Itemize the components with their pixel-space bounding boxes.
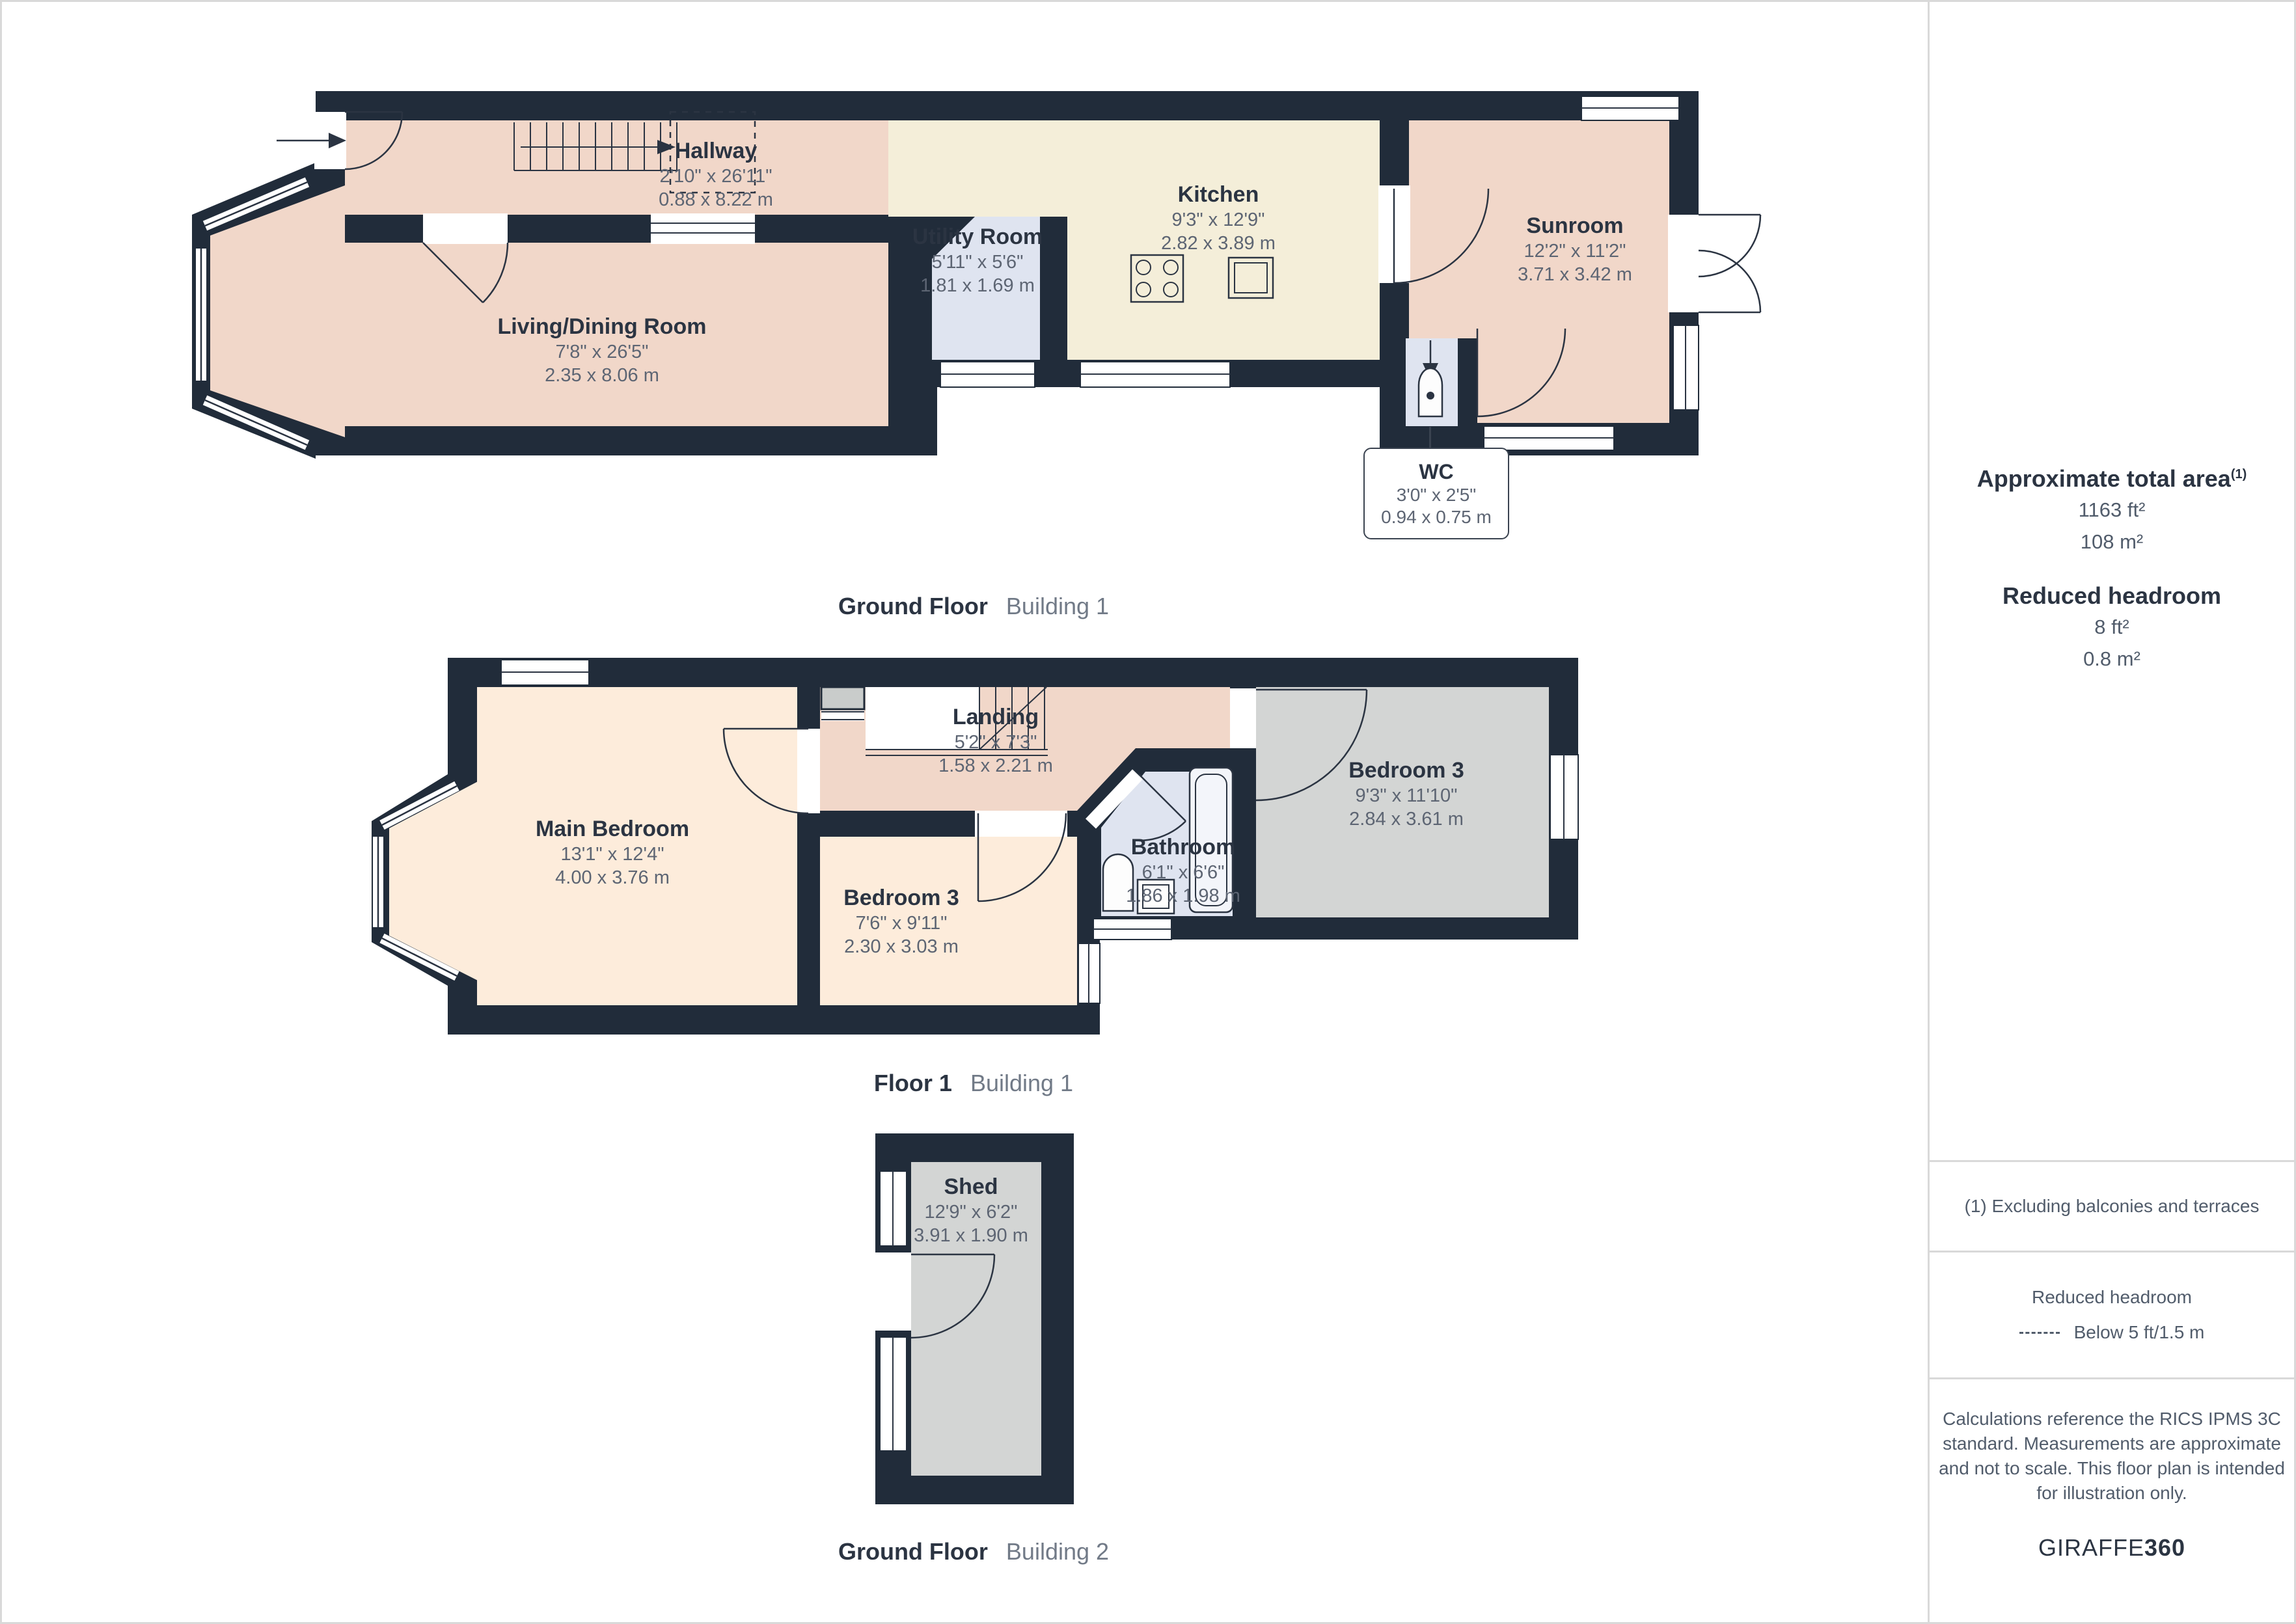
room-dims-metric: 2.82 x 3.89 m xyxy=(1161,232,1276,255)
room-name: Bedroom 3 xyxy=(1348,757,1464,784)
room-name: Living/Dining Room xyxy=(497,313,706,340)
room-name: Bathroom xyxy=(1126,833,1240,861)
room-dims-metric: 3.71 x 3.42 m xyxy=(1518,263,1632,286)
room-dims-metric: 2.35 x 8.06 m xyxy=(497,364,706,387)
room-label-utility: Utility Room 5'11" x 5'6" 1.81 x 1.69 m xyxy=(912,223,1043,297)
disclaimer-text: Calculations reference the RICS IPMS 3C … xyxy=(1930,1407,2294,1506)
caption-floor1-b1: Floor 1Building 1 xyxy=(874,1070,1073,1097)
total-area-m: 108 m² xyxy=(1928,526,2296,558)
caption-floor: Floor 1 xyxy=(874,1070,952,1096)
total-area-ft: 1163 ft² xyxy=(1928,494,2296,526)
room-label-bedroom3-mid: Bedroom 3 7'6" x 9'11" 2.30 x 3.03 m xyxy=(843,884,959,958)
total-area-title: Approximate total area(1) xyxy=(1928,459,2296,494)
room-name: WC xyxy=(1419,459,1453,484)
reduced-headroom-ft: 8 ft² xyxy=(1928,611,2296,643)
room-dims-metric: 2.84 x 3.61 m xyxy=(1348,807,1464,831)
room-dims-imperial: 3'0" x 2'5" xyxy=(1397,484,1476,506)
room-dims-imperial: 12'2" x 11'2" xyxy=(1518,239,1632,263)
footnote-marker: (1) xyxy=(2231,467,2247,481)
caption-building: Building 1 xyxy=(1006,593,1109,619)
room-dims-metric: 0.88 x 8.22 m xyxy=(659,188,773,211)
caption-ground-floor-b2: Ground FloorBuilding 2 xyxy=(838,1538,1109,1565)
sidebar-area-summary: Approximate total area(1) 1163 ft² 108 m… xyxy=(1928,459,2296,675)
caption-floor: Ground Floor xyxy=(838,1538,988,1565)
room-dims-metric: 3.91 x 1.90 m xyxy=(914,1224,1028,1247)
sidebar-left-divider xyxy=(1928,0,1930,1624)
sidebar-legend: Reduced headroom Below 5 ft/1.5 m xyxy=(1928,1287,2296,1343)
footnote-text: (1) Excluding balconies and terraces xyxy=(1928,1196,2296,1217)
floorplan-page: Hallway 2'10" x 26'11" 0.88 x 8.22 m Liv… xyxy=(0,0,2296,1624)
room-dims-metric: 1.81 x 1.69 m xyxy=(912,274,1043,297)
room-dims-metric: 4.00 x 3.76 m xyxy=(536,866,689,889)
room-label-landing: Landing 5'2" x 7'3" 1.58 x 2.21 m xyxy=(938,703,1053,778)
room-name: Utility Room xyxy=(912,223,1043,250)
room-name: Kitchen xyxy=(1161,181,1276,208)
room-dims-imperial: 7'8" x 26'5" xyxy=(497,340,706,364)
sidebar-divider-3 xyxy=(1928,1377,2296,1379)
room-label-shed: Shed 12'9" x 6'2" 3.91 x 1.90 m xyxy=(914,1173,1028,1247)
room-dims-imperial: 6'1" x 6'6" xyxy=(1126,861,1240,884)
reduced-headroom-title: Reduced headroom xyxy=(1928,581,2296,611)
sidebar-disclaimer: Calculations reference the RICS IPMS 3C … xyxy=(1928,1407,2296,1562)
caption-ground-floor-b1: Ground FloorBuilding 1 xyxy=(838,593,1109,620)
room-dims-metric: 1.58 x 2.21 m xyxy=(938,754,1053,778)
sidebar-footnote: (1) Excluding balconies and terraces xyxy=(1928,1196,2296,1217)
dashed-line-icon xyxy=(2019,1332,2060,1334)
room-name: Landing xyxy=(938,703,1053,731)
wc-callout-leader xyxy=(1429,427,1431,449)
giraffe360-logo: GIRAFFE360 xyxy=(1928,1534,2296,1562)
room-name: Hallway xyxy=(659,137,773,165)
room-dims-metric: 0.94 x 0.75 m xyxy=(1381,506,1492,528)
floorplan-drawing xyxy=(0,0,2296,1624)
room-name: Sunroom xyxy=(1518,212,1632,239)
room-name: Bedroom 3 xyxy=(843,884,959,912)
room-label-bedroom3-right: Bedroom 3 9'3" x 11'10" 2.84 x 3.61 m xyxy=(1348,757,1464,831)
room-dims-metric: 2.30 x 3.03 m xyxy=(843,935,959,958)
room-label-main-bedroom: Main Bedroom 13'1" x 12'4" 4.00 x 3.76 m xyxy=(536,815,689,889)
room-dims-imperial: 9'3" x 11'10" xyxy=(1348,784,1464,807)
room-name: Main Bedroom xyxy=(536,815,689,843)
closet xyxy=(821,687,864,709)
room-dims-imperial: 12'9" x 6'2" xyxy=(914,1200,1028,1224)
room-label-sunroom: Sunroom 12'2" x 11'2" 3.71 x 3.42 m xyxy=(1518,212,1632,286)
reduced-headroom-m: 0.8 m² xyxy=(1928,643,2296,675)
room-name: Shed xyxy=(914,1173,1028,1200)
toilet-icon xyxy=(1419,368,1442,416)
room-dims-imperial: 2'10" x 26'11" xyxy=(659,165,773,188)
legend-label: Below 5 ft/1.5 m xyxy=(2074,1322,2205,1343)
caption-building: Building 1 xyxy=(970,1070,1073,1096)
room-label-hallway: Hallway 2'10" x 26'11" 0.88 x 8.22 m xyxy=(659,137,773,211)
sidebar-divider-2 xyxy=(1928,1251,2296,1252)
legend-title: Reduced headroom xyxy=(1928,1287,2296,1308)
room-dims-imperial: 9'3" x 12'9" xyxy=(1161,208,1276,232)
room-dims-imperial: 5'11" x 5'6" xyxy=(912,250,1043,274)
room-label-kitchen: Kitchen 9'3" x 12'9" 2.82 x 3.89 m xyxy=(1161,181,1276,255)
room-dims-metric: 1.86 x 1.98 m xyxy=(1126,884,1240,908)
caption-floor: Ground Floor xyxy=(838,593,988,619)
room-label-bathroom: Bathroom 6'1" x 6'6" 1.86 x 1.98 m xyxy=(1126,833,1240,908)
room-dims-imperial: 7'6" x 9'11" xyxy=(843,912,959,935)
room-dims-imperial: 13'1" x 12'4" xyxy=(536,843,689,866)
room-dims-imperial: 5'2" x 7'3" xyxy=(938,731,1053,754)
caption-building: Building 2 xyxy=(1006,1538,1109,1565)
sidebar-divider-1 xyxy=(1928,1160,2296,1162)
room-label-living-dining: Living/Dining Room 7'8" x 26'5" 2.35 x 8… xyxy=(497,313,706,387)
room-label-wc-callout: WC 3'0" x 2'5" 0.94 x 0.75 m xyxy=(1363,448,1509,539)
